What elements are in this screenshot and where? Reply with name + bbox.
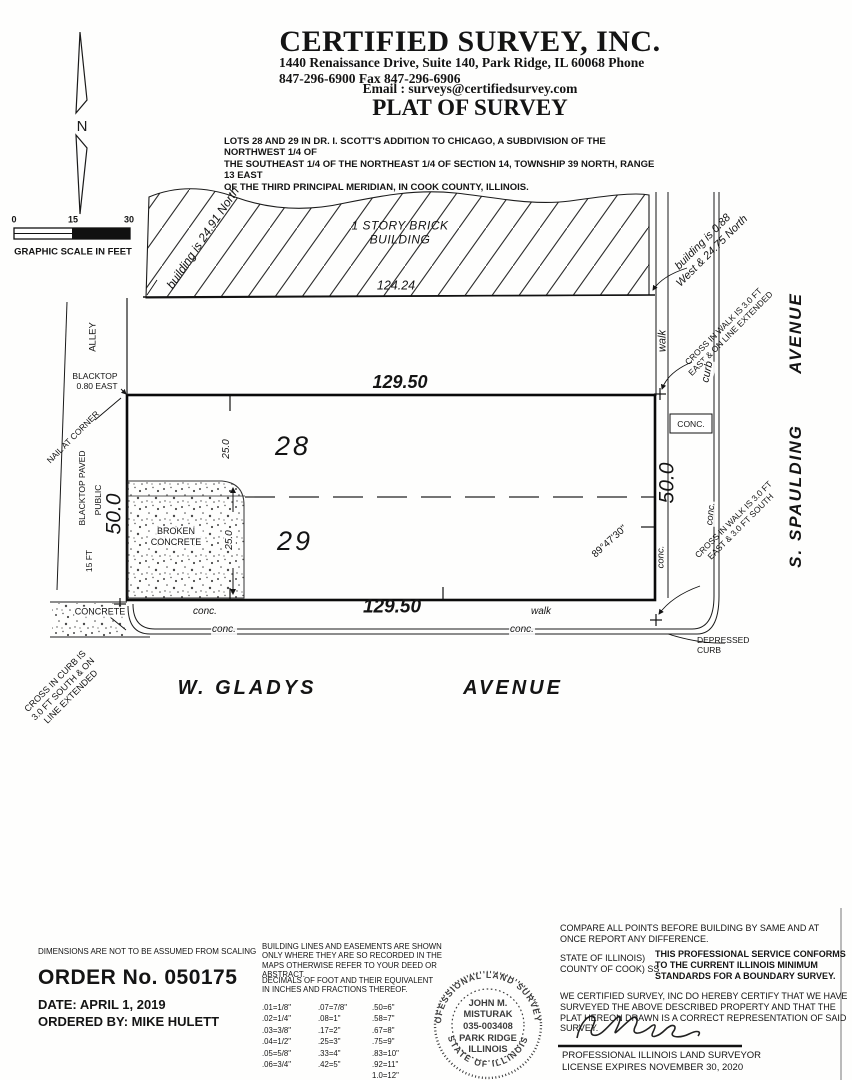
dim-north-129: 129.50 <box>372 372 427 394</box>
decimal-cell: .07=7/8" <box>318 1002 347 1013</box>
north-letter: N <box>77 118 88 135</box>
decimal-cell: .25=3" <box>318 1036 347 1047</box>
seal-line: MISTURAK <box>463 1009 512 1019</box>
seal-line: ILLINOIS <box>468 1044 507 1054</box>
decimal-cell: .06=3/4" <box>262 1059 291 1070</box>
decimals-title: DECIMALS OF FOOT AND THEIR EQUIVALENT IN… <box>262 976 433 995</box>
decimal-cell: .67=8" <box>372 1025 399 1036</box>
dim-south-129: 129.50 <box>363 597 421 620</box>
state-county-note: STATE OF ILLINOIS) COUNTY OF COOK) SS <box>560 953 659 975</box>
plat-of-survey-page: N <box>0 0 852 1080</box>
walk-south-label: walk <box>531 606 551 618</box>
decimal-cell: .01=1/8" <box>262 1002 291 1013</box>
decimal-cell: .17=2" <box>318 1025 347 1036</box>
street-east-avenue: AVENUE <box>786 292 806 374</box>
order-number: ORDER No. 050175 <box>38 965 237 990</box>
street-south-gladys: W. GLADYS <box>178 676 317 700</box>
depressed-curb-label: DEPRESSED CURB <box>697 635 749 655</box>
order-date: DATE: APRIL 1, 2019 <box>38 997 166 1013</box>
scale-caption: GRAPHIC SCALE IN FEET <box>14 246 132 257</box>
concrete-sw-label: CONCRETE <box>74 607 127 618</box>
conforms-note: THIS PROFESSIONAL SERVICE CONFORMS TO TH… <box>655 949 852 981</box>
legal-description: LOTS 28 AND 29 IN DR. I. SCOTT'S ADDITIO… <box>224 136 664 193</box>
decimal-cell: .05=5/8" <box>262 1048 291 1059</box>
decimal-cell: .75=9" <box>372 1036 399 1047</box>
decimal-cell: .50=6" <box>372 1002 399 1013</box>
conc-box-label: CONC. <box>677 419 704 429</box>
lot-29-number: 29 <box>277 525 313 557</box>
decimal-cell: .02=1/4" <box>262 1013 291 1024</box>
scale-tick-15: 15 <box>68 215 78 226</box>
decimal-cell: 1.0=12" <box>372 1070 399 1080</box>
dim-building-south: 124.24 <box>377 279 415 294</box>
conc-south-label-3: conc. <box>509 624 535 636</box>
certify-statement: WE CERTIFIED SURVEY, INC DO HEREBY CERTI… <box>560 991 852 1034</box>
decimals-col-3: .50=6" .58=7" .67=8" .75=9" .83=10" .92=… <box>372 1002 399 1080</box>
alley-label: ALLEY <box>87 322 98 352</box>
decimal-cell: .83=10" <box>372 1048 399 1059</box>
dim-west-50: 50.0 <box>101 494 126 535</box>
building-lines-note: BUILDING LINES AND EASEMENTS ARE SHOWN O… <box>262 942 442 979</box>
ordered-by: ORDERED BY: MIKE HULETT <box>38 1014 219 1030</box>
decimal-cell: .58=7" <box>372 1013 399 1024</box>
blacktop-paved-label: BLACKTOP PAVED <box>77 451 87 526</box>
decimal-cell: .03=3/8" <box>262 1025 291 1036</box>
dim-lot28-25: 25.0 <box>221 439 233 458</box>
fifteen-ft-label: 15 FT <box>84 550 94 572</box>
dim-east-50: 50.0 <box>654 463 679 504</box>
scale-tick-0: 0 <box>11 215 16 226</box>
broken-concrete-label: BROKEN CONCRETE <box>150 526 203 548</box>
street-east-spaulding: S. SPAULDING <box>786 424 806 568</box>
surveyor-title: PROFESSIONAL ILLINOIS LAND SURVEYOR <box>562 1050 761 1061</box>
walk-east-label: walk <box>656 330 669 352</box>
decimal-cell: .92=11" <box>372 1059 399 1070</box>
lot-28-number: 28 <box>275 430 311 462</box>
seal-line: PARK RIDGE <box>459 1033 517 1043</box>
scale-tick-30: 30 <box>124 215 134 226</box>
north-arrow-icon: N <box>76 32 87 214</box>
decimals-col-1: .01=1/8" .02=1/4" .03=3/8" .04=1/2" .05=… <box>262 1002 291 1070</box>
public-label: PUBLIC <box>93 485 103 516</box>
decimal-cell: .08=1" <box>318 1013 347 1024</box>
compare-points-note: COMPARE ALL POINTS BEFORE BUILDING BY SA… <box>560 923 835 945</box>
building-label: 1 STORY BRICK BUILDING <box>352 219 449 248</box>
decimal-cell: .42=5" <box>318 1059 347 1070</box>
no-scaling-note: DIMENSIONS ARE NOT TO BE ASSUMED FROM SC… <box>38 947 256 957</box>
seal-line: JOHN M. <box>469 998 508 1008</box>
seal-line: 035-003408 <box>463 1021 513 1031</box>
street-south-avenue: AVENUE <box>463 676 563 700</box>
dim-lot29-25: 25.0 <box>224 529 236 550</box>
decimal-cell: .33=4" <box>318 1048 347 1059</box>
scale-bar <box>14 228 130 239</box>
conc-east-label-1: conc. <box>655 546 666 569</box>
decimal-cell: .04=1/2" <box>262 1036 291 1047</box>
conc-south-label-2: conc. <box>211 624 237 636</box>
conc-south-label-1: conc. <box>193 606 217 618</box>
license-expiry: LICENSE EXPIRES NOVEMBER 30, 2020 <box>562 1062 743 1073</box>
blacktop-east-note: BLACKTOP 0.80 EAST <box>72 371 117 391</box>
page-title: PLAT OF SURVEY <box>372 94 568 122</box>
decimals-col-2: .07=7/8" .08=1" .17=2" .25=3" .33=4" .42… <box>318 1002 347 1070</box>
